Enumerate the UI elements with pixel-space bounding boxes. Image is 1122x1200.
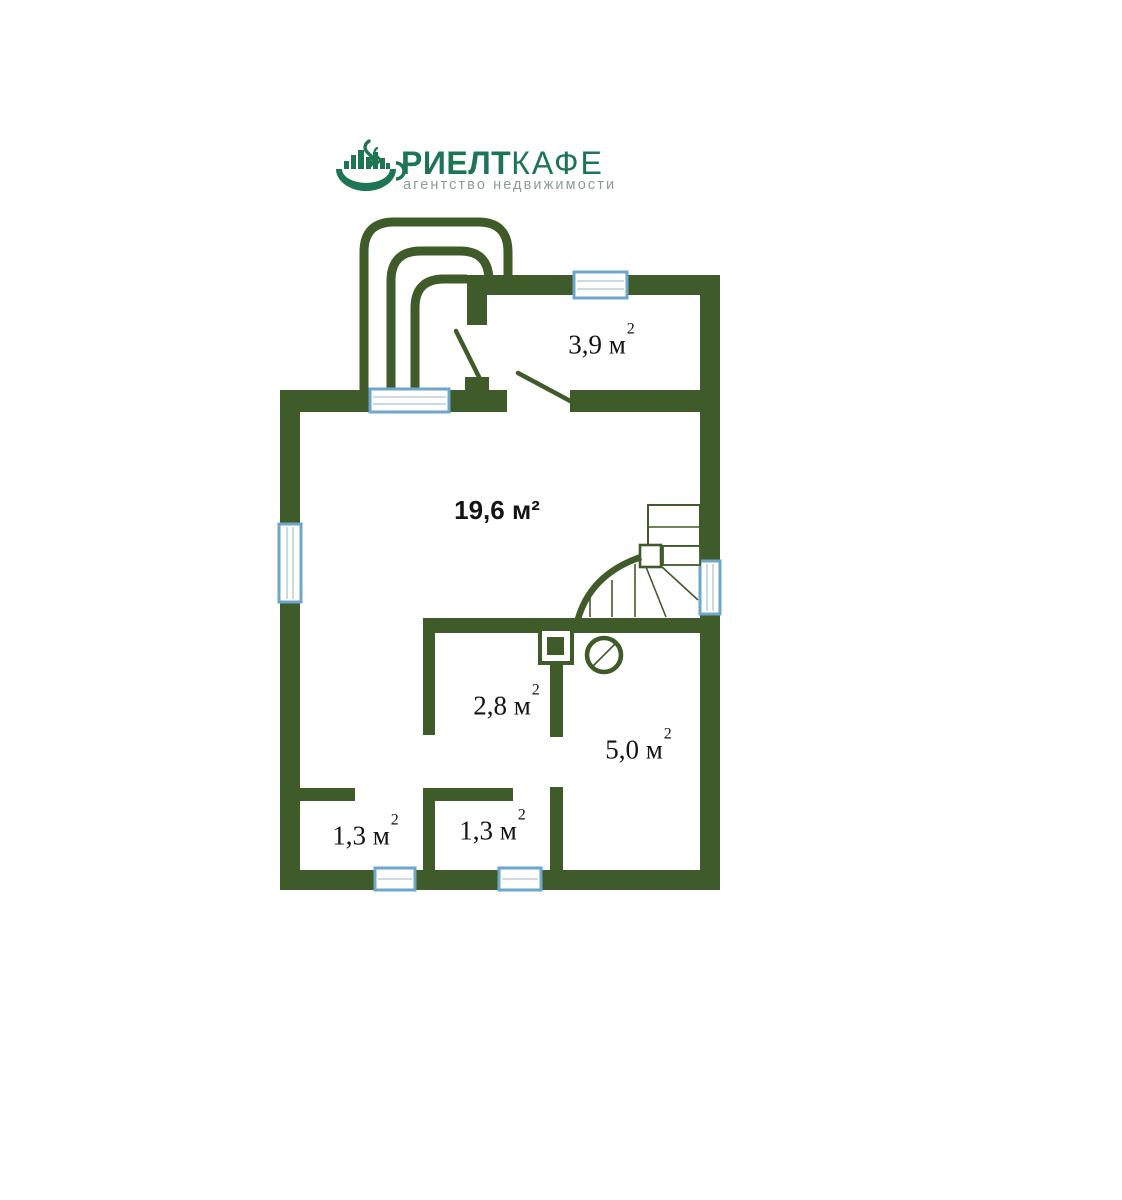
wall-main-right-segment <box>570 390 720 412</box>
wall-corridor-left-upper <box>423 618 435 735</box>
logo-title-light: КАФЕ <box>511 145 604 181</box>
wall-closet-left-top <box>298 788 355 801</box>
window-left <box>279 524 301 602</box>
logo-subtitle: агентство недвижимости <box>403 178 616 193</box>
walls <box>280 275 720 890</box>
stove-flue-fixture <box>540 629 572 663</box>
window-right <box>700 561 720 614</box>
room-label-entry-hall: 3,9 м2 <box>568 332 634 359</box>
wall-closet-divider <box>423 788 435 870</box>
door-leaf-hall <box>518 373 574 403</box>
room-label-bathroom: 5,0 м2 <box>605 737 671 764</box>
stair-curved-stringer <box>578 557 641 619</box>
water-heater-fixture <box>587 638 621 672</box>
window-top <box>574 272 627 298</box>
wall-corridor-bath-upper <box>550 660 563 737</box>
wall-closet-middle-top <box>423 788 513 801</box>
room-label-living-room: 19,6 м² <box>454 497 540 523</box>
window-bottom-middle <box>499 868 541 890</box>
wall-main-mid-segment <box>448 390 507 412</box>
floor-plan-page: РИЕЛТКАФЕ агентство недвижимости 3,9 м2 … <box>0 0 1122 1200</box>
logo-title: РИЕЛТКАФЕ <box>401 147 604 179</box>
window-porch <box>370 389 449 412</box>
room-label-corridor: 2,8 м2 <box>473 693 539 720</box>
door-leaf-entry <box>456 331 480 379</box>
wall-left-outer <box>280 390 300 890</box>
wall-top-left-segment <box>487 275 575 295</box>
logo-title-bold: РИЕЛТ <box>401 145 511 181</box>
logo-coffee-cup-icon <box>336 141 404 191</box>
wall-corridor-bath-lower <box>550 787 563 870</box>
room-label-closet-left: 1,3 м2 <box>332 823 398 850</box>
window-bottom-left <box>375 868 415 890</box>
staircase <box>578 505 700 619</box>
wall-entry-block <box>467 275 487 325</box>
wall-door-stub <box>465 377 489 391</box>
stair-newel-post <box>640 545 661 567</box>
room-label-closet-middle: 1,3 м2 <box>459 818 525 845</box>
stair-landing <box>663 546 700 565</box>
